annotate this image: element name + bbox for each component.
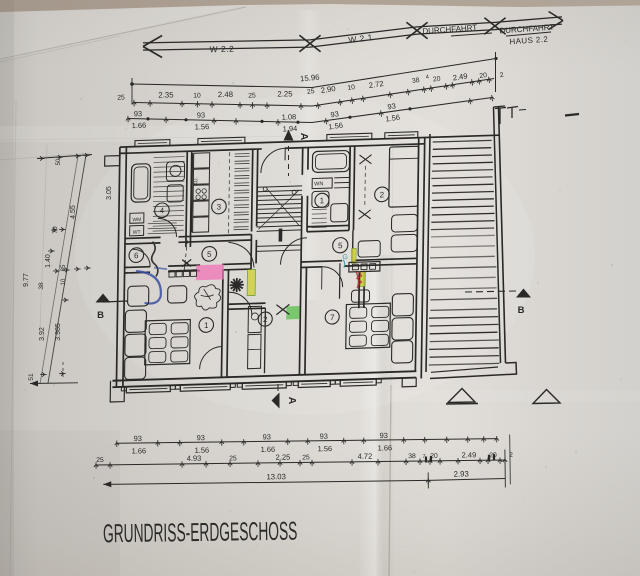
svg-text:10: 10 <box>193 92 201 99</box>
svg-text:20: 20 <box>479 72 488 80</box>
svg-text:1.56: 1.56 <box>318 444 333 453</box>
svg-text:WM: WM <box>132 217 141 223</box>
svg-text:3.92: 3.92 <box>39 327 46 341</box>
svg-text:25: 25 <box>307 88 316 96</box>
svg-text:93: 93 <box>196 433 204 442</box>
svg-text:38: 38 <box>408 453 416 460</box>
svg-text:25: 25 <box>248 92 256 99</box>
svg-text:3: 3 <box>217 202 222 211</box>
svg-text:2.48: 2.48 <box>218 90 233 99</box>
svg-text:93: 93 <box>319 432 327 441</box>
svg-text:2: 2 <box>263 315 268 324</box>
svg-text:4.55: 4.55 <box>70 205 77 219</box>
svg-text:25: 25 <box>302 454 310 461</box>
svg-text:1.66: 1.66 <box>132 446 147 455</box>
svg-text:2.93: 2.93 <box>454 469 469 478</box>
svg-text:3.985: 3.985 <box>55 323 62 341</box>
svg-text:4: 4 <box>160 206 165 215</box>
svg-text:1.08: 1.08 <box>281 112 296 122</box>
svg-text:50: 50 <box>56 158 62 165</box>
svg-text:1: 1 <box>204 321 209 330</box>
svg-text:KÜ.: KÜ. <box>192 177 199 186</box>
svg-text:2.25: 2.25 <box>276 453 291 462</box>
svg-text:9.77: 9.77 <box>23 273 30 287</box>
svg-text:85: 85 <box>61 264 67 271</box>
svg-text:38: 38 <box>412 77 421 85</box>
svg-text:10: 10 <box>347 84 356 92</box>
svg-text:1.66: 1.66 <box>131 121 146 131</box>
svg-text:A: A <box>286 397 298 405</box>
svg-text:4.72: 4.72 <box>358 452 373 461</box>
svg-text:1.40: 1.40 <box>45 254 52 268</box>
svg-text:1.66: 1.66 <box>261 445 276 454</box>
svg-text:1: 1 <box>320 196 325 205</box>
svg-text:93: 93 <box>134 109 143 118</box>
svg-text:25: 25 <box>117 94 125 101</box>
svg-text:WT: WT <box>133 229 141 235</box>
svg-text:93: 93 <box>133 434 141 443</box>
svg-text:1.94: 1.94 <box>282 124 297 134</box>
svg-text:3.05: 3.05 <box>106 186 113 200</box>
svg-text:2.25: 2.25 <box>277 89 293 98</box>
svg-text:93: 93 <box>387 101 397 111</box>
svg-text:GRUNDRISS-ERDGESCHOSS: GRUNDRISS-ERDGESCHOSS <box>103 517 298 548</box>
svg-text:70: 70 <box>52 226 59 234</box>
svg-text:2: 2 <box>380 190 385 199</box>
svg-text:25: 25 <box>96 457 104 464</box>
svg-text:W 2.2: W 2.2 <box>210 44 235 54</box>
svg-text:5: 5 <box>207 250 212 259</box>
svg-text:A: A <box>298 133 310 141</box>
svg-text:93: 93 <box>379 431 387 440</box>
svg-text:1.66: 1.66 <box>378 443 393 452</box>
svg-text:4.93: 4.93 <box>187 454 202 463</box>
svg-text:13.03: 13.03 <box>266 472 286 481</box>
svg-text:93: 93 <box>262 432 270 441</box>
svg-text:2.35: 2.35 <box>158 90 174 99</box>
svg-text:15.96: 15.96 <box>300 73 320 84</box>
svg-text:10: 10 <box>61 278 67 285</box>
svg-text:93: 93 <box>330 109 340 119</box>
svg-text:B: B <box>518 305 525 316</box>
svg-text:7: 7 <box>330 313 335 322</box>
svg-text:5: 5 <box>338 241 343 250</box>
svg-text:1.56: 1.56 <box>194 122 209 132</box>
svg-text:20: 20 <box>433 75 442 83</box>
svg-text:38: 38 <box>38 282 45 290</box>
svg-text:51: 51 <box>28 373 35 381</box>
svg-text:93: 93 <box>197 110 206 119</box>
svg-text:2.49: 2.49 <box>462 450 477 459</box>
svg-text:WN: WN <box>314 181 323 187</box>
svg-text:B: B <box>97 310 104 321</box>
svg-text:6: 6 <box>134 251 139 260</box>
